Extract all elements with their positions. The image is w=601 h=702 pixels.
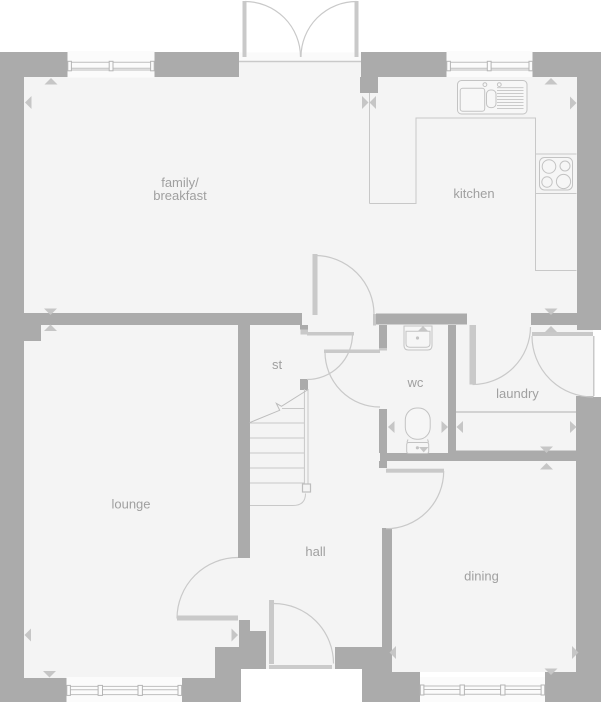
- svg-text:laundry: laundry: [496, 386, 539, 401]
- svg-text:wc: wc: [407, 375, 424, 390]
- svg-text:hall: hall: [305, 544, 325, 559]
- svg-text:dining: dining: [464, 569, 499, 584]
- svg-text:kitchen: kitchen: [453, 186, 494, 201]
- svg-text:st: st: [272, 357, 283, 372]
- svg-text:breakfast: breakfast: [153, 188, 207, 203]
- svg-text:lounge: lounge: [111, 497, 150, 512]
